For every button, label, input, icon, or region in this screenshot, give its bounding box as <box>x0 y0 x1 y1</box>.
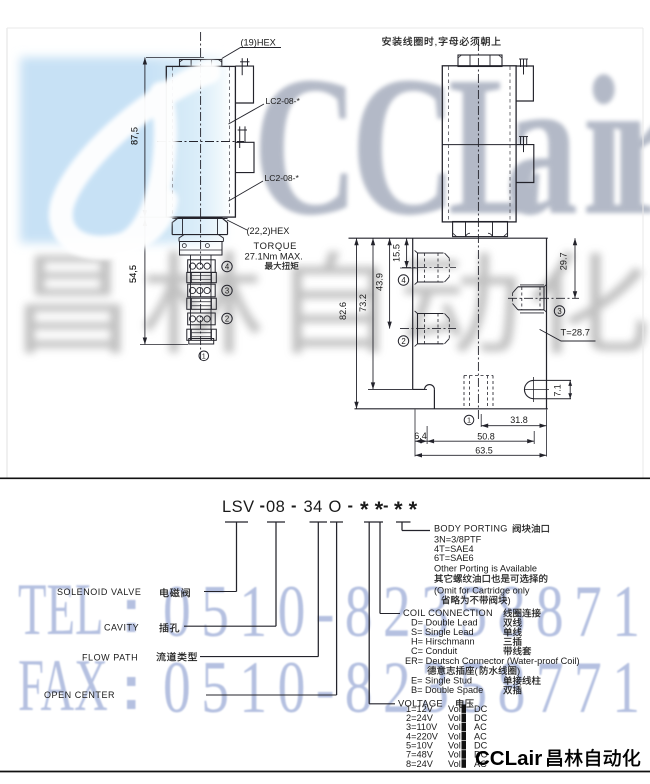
svg-text:OPEN CENTER: OPEN CENTER <box>44 690 115 700</box>
svg-text:6.4: 6.4 <box>414 431 427 441</box>
svg-text:3N=3/8PTF: 3N=3/8PTF <box>434 535 482 545</box>
svg-text:C= Conduit: C= Conduit <box>411 646 458 656</box>
svg-text:73.2: 73.2 <box>358 294 368 312</box>
svg-text:54,5: 54,5 <box>128 265 138 283</box>
svg-text:C: C <box>253 35 358 257</box>
svg-text:,: , <box>435 37 438 48</box>
svg-text:SOLENOID VALVE: SOLENOID VALVE <box>57 587 141 597</box>
svg-text:(19)HEX: (19)HEX <box>241 38 276 48</box>
svg-text:6T=SAE6: 6T=SAE6 <box>434 553 474 563</box>
svg-text:82.6: 82.6 <box>338 302 348 320</box>
svg-text:63.5: 63.5 <box>475 446 493 456</box>
svg-text:TORQUE: TORQUE <box>254 240 298 251</box>
svg-text:LSV: LSV <box>222 498 255 516</box>
svg-text:r: r <box>608 35 650 257</box>
svg-text:0510-82358871: 0510-82358871 <box>163 572 640 653</box>
svg-text:43.9: 43.9 <box>374 273 384 291</box>
svg-text:CCLair: CCLair <box>475 747 542 770</box>
svg-text:7.1: 7.1 <box>553 384 563 396</box>
svg-text:8=24V: 8=24V <box>406 759 434 769</box>
svg-text:-: - <box>260 497 266 515</box>
svg-text:ER= Deutsch Connector (Water-p: ER= Deutsch Connector (Water-proof Coil) <box>405 656 580 666</box>
svg-text:E= Single Stud: E= Single Stud <box>411 676 472 686</box>
svg-text:CAVITY: CAVITY <box>104 623 139 633</box>
svg-text:1: 1 <box>202 351 206 360</box>
svg-text:-: - <box>291 497 297 515</box>
svg-text:B= Double Spade: B= Double Spade <box>411 685 483 695</box>
svg-text:): ) <box>517 666 520 677</box>
svg-text:FLOW PATH: FLOW PATH <box>82 653 138 663</box>
svg-text:Vol: Vol <box>448 759 461 769</box>
svg-text:50.8: 50.8 <box>477 432 495 442</box>
svg-text:H= Hirschmann: H= Hirschmann <box>411 637 475 647</box>
svg-text:3: 3 <box>557 307 561 316</box>
svg-text:34: 34 <box>304 498 323 516</box>
svg-text:D= Double Lead: D= Double Lead <box>411 618 478 628</box>
svg-text:* *: * * <box>394 497 418 522</box>
svg-text:S= Single Lead: S= Single Lead <box>411 627 474 637</box>
svg-text:08: 08 <box>266 498 285 516</box>
svg-text:4: 4 <box>401 276 406 285</box>
svg-text:BODY PORTING: BODY PORTING <box>434 524 508 534</box>
svg-text:-: - <box>383 497 389 515</box>
svg-text:O: O <box>329 498 342 516</box>
svg-text:): ) <box>508 596 511 607</box>
svg-text:4: 4 <box>225 262 230 271</box>
svg-text:29.7: 29.7 <box>559 252 569 270</box>
svg-text:3: 3 <box>225 286 229 295</box>
svg-text:15.5: 15.5 <box>391 244 401 262</box>
svg-text:(22,2)HEX: (22,2)HEX <box>247 226 290 236</box>
svg-text:Other Porting is Available: Other Porting is Available <box>434 564 537 574</box>
svg-text:T=28.7: T=28.7 <box>561 327 590 338</box>
svg-text:1: 1 <box>467 416 471 425</box>
svg-text:87,5: 87,5 <box>130 127 140 145</box>
svg-text:COIL CONNECTION: COIL CONNECTION <box>403 608 493 618</box>
svg-text:* *: * * <box>360 497 384 522</box>
svg-text:31.8: 31.8 <box>510 415 528 425</box>
svg-text:C: C <box>351 35 456 257</box>
svg-text:2: 2 <box>225 314 229 323</box>
svg-text:27.1Nm MAX.: 27.1Nm MAX. <box>245 251 303 262</box>
svg-text:LC2-08-*: LC2-08-* <box>266 96 301 106</box>
svg-text:LC2-08-*: LC2-08-* <box>265 173 300 183</box>
svg-text:TEL: TEL <box>18 569 103 650</box>
svg-text:(Omit for Cartridge only: (Omit for Cartridge only <box>434 586 530 596</box>
svg-text:2: 2 <box>401 337 405 346</box>
svg-text:-: - <box>348 497 354 515</box>
